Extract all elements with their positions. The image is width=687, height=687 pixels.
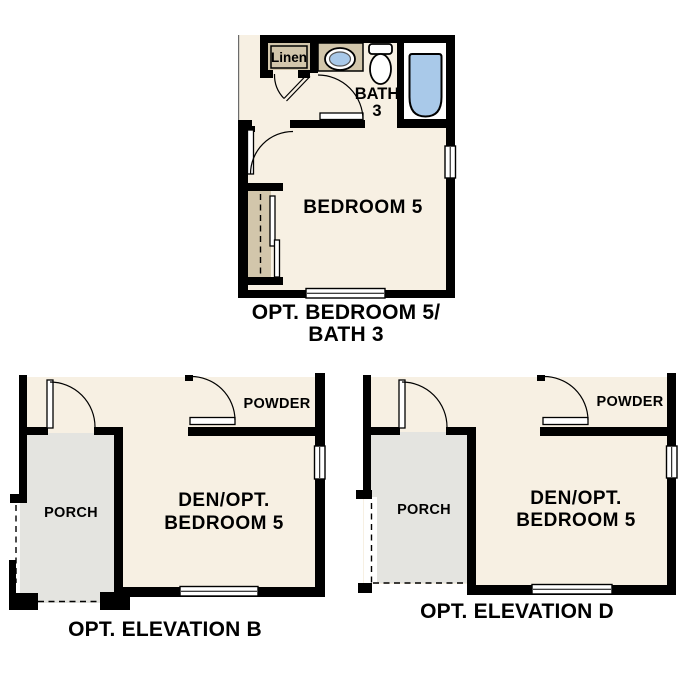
toilet-bowl (370, 54, 391, 84)
bath-label-line1: BATH (355, 85, 400, 103)
wall (114, 428, 123, 610)
sliding-door (275, 240, 280, 277)
plan-bedroom5-bath3: Linen (238, 35, 456, 346)
toilet (369, 44, 392, 84)
den-side-window (667, 446, 678, 478)
bedroom-label: BEDROOM 5 (303, 197, 423, 218)
powder-label: POWDER (243, 396, 310, 412)
wall (467, 428, 476, 593)
bathtub (404, 43, 446, 119)
plan-caption-line1: OPT. BEDROOM 5/ (252, 301, 441, 324)
den-bottom-window (180, 587, 258, 597)
porch-step (372, 584, 467, 593)
tub (410, 54, 442, 117)
wall (260, 70, 273, 78)
den-side-window (315, 446, 326, 479)
plan-elevation-b: POWDER PORCH DEN/OPT. BEDROOM 5 OPT. ELE… (9, 373, 325, 641)
toilet-tank (369, 44, 392, 54)
door-leaf (190, 418, 235, 425)
den-label-line2: BEDROOM 5 (164, 513, 284, 534)
den-label-line1: DEN/OPT. (178, 490, 270, 511)
plan-elevation-d: POWDER PORCH DEN/OPT. BEDROOM 5 OPT. ELE… (356, 373, 677, 623)
closet-floor (248, 191, 271, 277)
powder-label: POWDER (596, 394, 663, 410)
bath-label-line2: 3 (372, 102, 381, 120)
plan-caption-line2: BATH 3 (308, 323, 383, 346)
porch-label: PORCH (44, 505, 98, 521)
vanity-sink (318, 43, 363, 71)
wall (247, 183, 283, 191)
wall (356, 490, 372, 499)
door-leaf (320, 113, 363, 120)
wall (260, 35, 455, 43)
wall (19, 427, 48, 435)
wall (358, 583, 372, 593)
door-leaf (47, 380, 53, 428)
bedroom-bottom-window (306, 289, 385, 299)
wall (540, 427, 676, 436)
den-label-line1: DEN/OPT. (530, 488, 622, 509)
wall (238, 126, 248, 298)
bedroom-side-window (445, 146, 456, 178)
wall (318, 120, 365, 128)
plan-caption: OPT. ELEVATION B (68, 618, 262, 641)
bedroom-closet (248, 191, 280, 277)
wall (188, 427, 325, 436)
wall (10, 494, 27, 503)
den-bottom-window (532, 585, 612, 595)
wall (310, 43, 318, 73)
wall (9, 593, 38, 610)
sink-bowl (330, 52, 351, 66)
wall (260, 43, 268, 74)
wall (315, 373, 325, 597)
door-leaf (399, 380, 405, 428)
wall (363, 427, 400, 435)
wall (363, 375, 371, 497)
floorplan-sheet: Linen (0, 0, 687, 687)
porch-label: PORCH (397, 502, 451, 518)
sliding-door (270, 196, 275, 246)
plan-caption: OPT. ELEVATION D (420, 600, 614, 623)
wall (667, 373, 676, 595)
porch-step (364, 497, 377, 583)
door-leaf (543, 418, 588, 425)
wall (19, 375, 27, 500)
wall (247, 277, 283, 285)
wall (290, 120, 318, 128)
porch-step (38, 603, 100, 610)
wall (397, 119, 455, 128)
den-label-line2: BEDROOM 5 (516, 510, 636, 531)
linen-label: Linen (271, 50, 307, 65)
